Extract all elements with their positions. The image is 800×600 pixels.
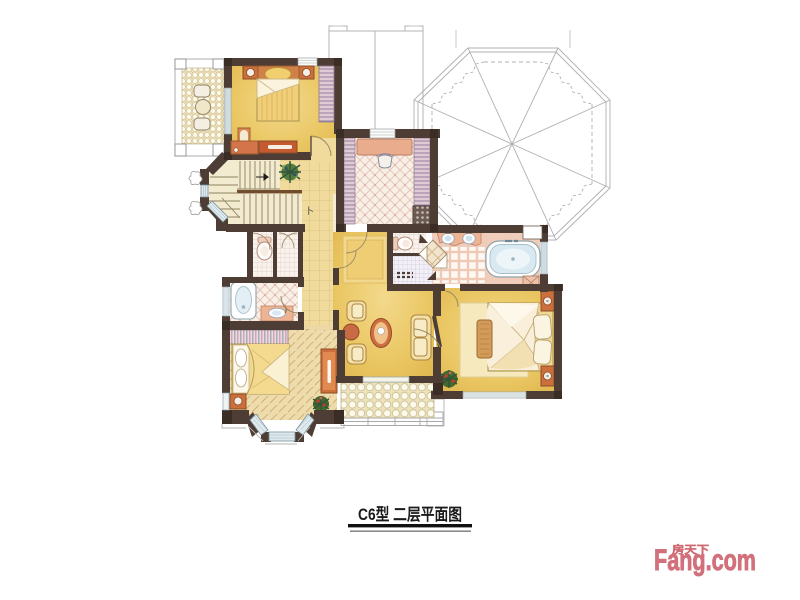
svg-text:Fang.com: Fang.com [654,544,756,577]
svg-text:C6型 二层平面图: C6型 二层平面图 [358,504,462,524]
svg-text:卜: 卜 [305,206,314,216]
